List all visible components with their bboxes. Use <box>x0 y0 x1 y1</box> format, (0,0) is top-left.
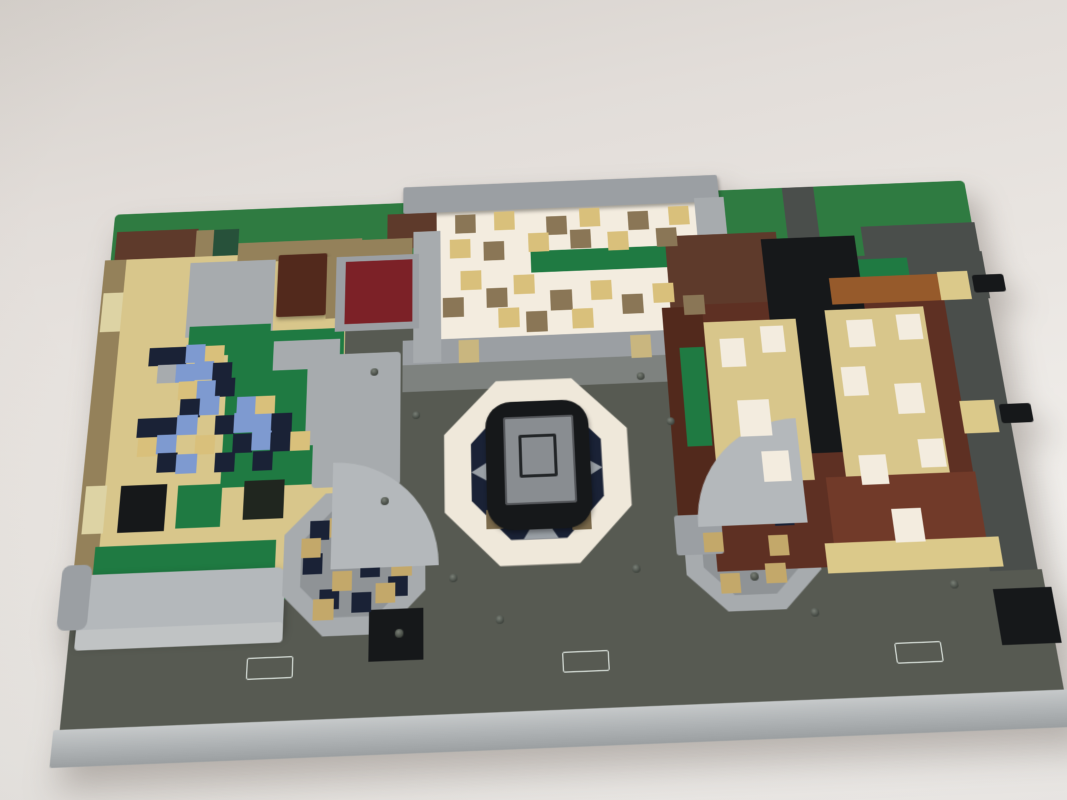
room-mosaic-sq-21 <box>526 311 548 332</box>
room-mosaic-sq-6 <box>450 239 471 259</box>
right-pond-check-5 <box>720 573 742 594</box>
stream-sq-8 <box>177 381 198 401</box>
stream-sq-2 <box>185 344 206 363</box>
stream-sq-19 <box>233 413 254 433</box>
stream-sq-30 <box>175 453 196 473</box>
left-top-brown-strip <box>114 229 198 260</box>
right-tan-pin-plate-2 <box>960 399 1000 433</box>
white-tile-10 <box>891 508 925 542</box>
room-mosaic-sq-23 <box>443 297 464 317</box>
white-tile-5 <box>895 313 923 340</box>
left-brown-brick <box>276 253 327 317</box>
right-tan-pin-plate-1 <box>936 270 972 300</box>
room-mosaic-sq-14 <box>514 274 536 294</box>
left-border-light-1 <box>100 293 124 333</box>
room-mosaic-sq-3 <box>579 208 601 227</box>
stream-sq-14 <box>255 396 276 416</box>
plaza-stud-7 <box>750 572 759 581</box>
mosaic-tan-stud-b <box>630 335 652 359</box>
white-tile-8 <box>858 454 889 485</box>
flower-tile <box>242 480 284 520</box>
stream-sq-31 <box>214 452 235 472</box>
room-mosaic-sq-22 <box>571 308 593 329</box>
stream-sq-17 <box>176 415 197 435</box>
left-edge-curve <box>56 565 92 631</box>
stream-sq-27 <box>270 431 291 451</box>
right-pond-check-4 <box>768 535 790 556</box>
room-mosaic-sq-4 <box>627 211 649 230</box>
room-mosaic-sq-10 <box>607 231 629 251</box>
plaza-stud-1 <box>412 411 420 419</box>
room-mosaic-sq-15 <box>550 290 572 310</box>
stream-sq-23 <box>156 434 177 454</box>
white-tile-7 <box>894 382 925 414</box>
black-tile-corner <box>993 587 1062 645</box>
left-border-light-2 <box>82 485 108 534</box>
stream-sq-28 <box>290 430 311 450</box>
room-mosaic-sq-13 <box>487 287 508 307</box>
photo-of-lego-baseplate: { "scene": { "description": "Photograph … <box>0 0 1067 800</box>
technic-pin-2 <box>999 403 1035 423</box>
room-mosaic-sq-19 <box>683 295 706 315</box>
room-mosaic-sq-17 <box>622 294 644 314</box>
white-tile-6 <box>841 367 869 397</box>
white-tile-0 <box>720 338 747 367</box>
room-mosaic-sq-8 <box>528 233 549 253</box>
left-pond-check-7 <box>351 592 371 613</box>
lego-baseplate-build <box>59 181 1066 783</box>
white-tile-2 <box>737 399 773 437</box>
stream-sq-25 <box>232 433 253 453</box>
stream-sq-24 <box>194 434 215 454</box>
room-mosaic-sq-20 <box>498 307 520 328</box>
right-pond-check-3 <box>703 532 724 552</box>
room-mosaic-sq-5 <box>668 206 690 225</box>
room-mosaic-sq-11 <box>655 228 677 248</box>
stream-sq-26 <box>251 430 272 450</box>
room-mosaic-sq-12 <box>461 270 482 290</box>
stream-sq-32 <box>252 450 273 470</box>
left-pond-check-14 <box>375 583 395 604</box>
plaza-stud-4 <box>636 372 644 380</box>
stream-sq-10 <box>215 378 236 398</box>
fountain-grille <box>518 433 558 478</box>
stream-sq-21 <box>271 413 292 433</box>
stream-sq-6 <box>194 361 215 380</box>
mosaic-tan-stud-a <box>458 340 479 364</box>
stream-sq-12 <box>199 396 220 416</box>
right-pond-check-6 <box>765 563 787 584</box>
room-mosaic-sq-1 <box>494 211 515 230</box>
plaza-stud-10 <box>496 615 505 624</box>
left-pond-check-12 <box>332 570 352 591</box>
room-mosaic-sq-0 <box>455 215 476 234</box>
left-pond-check-10 <box>301 538 321 558</box>
white-tile-3 <box>761 450 791 481</box>
left-green-square <box>175 484 222 528</box>
drain-grille-center <box>562 650 610 673</box>
right-midbrown-bar <box>829 273 943 304</box>
baseplate-surface <box>59 181 1066 783</box>
white-tile-1 <box>759 326 786 353</box>
room-mosaic-sq-9 <box>569 229 591 249</box>
technic-pin-1 <box>972 274 1006 292</box>
left-black-square <box>117 485 167 533</box>
stream-sq-18 <box>214 415 235 435</box>
white-tile-9 <box>918 438 947 467</box>
darkred-room <box>344 259 412 324</box>
white-tile-4 <box>846 319 876 348</box>
drain-grille-right <box>894 641 944 664</box>
left-pond-check-13 <box>313 599 334 620</box>
drain-grille-left <box>246 656 294 679</box>
plaza-stud-2 <box>380 497 388 505</box>
room-mosaic-sq-7 <box>484 241 505 261</box>
room-mosaic-sq-18 <box>652 282 675 302</box>
room-mosaic-sq-16 <box>590 280 612 300</box>
left-top-darkgreen-brick <box>213 229 240 256</box>
